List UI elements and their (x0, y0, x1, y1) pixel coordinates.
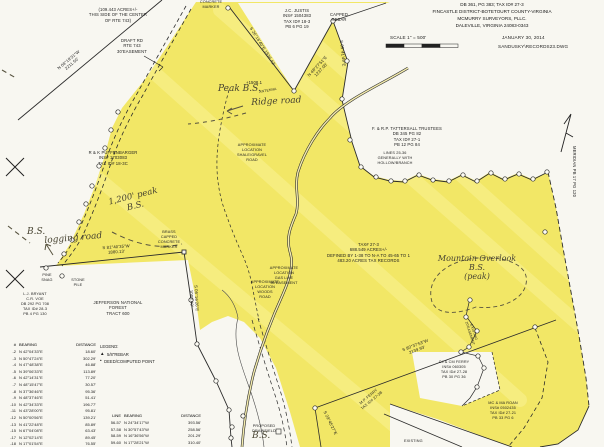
survey-plat-scan: DB 361, PG 383; TAX ID# 27-3 FINCASTLE D… (0, 0, 604, 447)
title-db-ref: DB 361, PG 383; TAX ID# 27-3 (386, 2, 598, 7)
bryant-owner-block: L.J. BRYANT C.R. VOE DB 292 PG 708 TAX I… (12, 292, 58, 317)
scale-bar-segment (440, 44, 458, 48)
shale-road-note: APPROXIMATE LOCATION SHALE/GRAVEL ROAD (228, 143, 276, 163)
cell: 77.20' (69, 376, 96, 381)
cell: 85.89' (69, 423, 96, 428)
cell: N 48°15'47"E (19, 383, 66, 388)
bearing-jnf-east: S 05°16'26"E 1008.40' (187, 276, 200, 321)
title-district: FINCASTLE DISTRICT-BOTETOURT COUNTY-VIRG… (386, 9, 598, 14)
scale-bar-segment (404, 44, 422, 48)
handwritten-mountain-overlook: Mountain Overlook B.S. (peak) (426, 255, 528, 282)
traverse-table-header: #BEARINGDISTANCE (2, 343, 96, 348)
cell: N 16°36'56"W (124, 434, 171, 439)
handwritten-bs-south: B.S. (252, 431, 270, 441)
cell: 393.56' (174, 421, 201, 426)
brass-marker-label: BRASS CAPPED CONCRETE MARKER (150, 230, 188, 250)
cell: # (2, 343, 16, 348)
cell: 76.55' (69, 442, 96, 447)
title-address: DALEVILLE, VIRGINIA 24083-0343 (386, 23, 598, 28)
legend-title: LEGEND: (100, 344, 155, 349)
tattersall-owner-block: F. & R.P. TATTERSALL TRUSTEES DB 345 PG … (352, 126, 462, 148)
cell: 57-58 (103, 428, 121, 433)
cell: 18.60' (69, 350, 96, 355)
puffenbarger-owner-block: R & K PUFFENBARGER INS# 1703083 TAX ID# … (58, 150, 168, 166)
scale-bar (386, 44, 458, 48)
cell: N 67°04'08"E (19, 429, 66, 434)
meridian-label: MERIDIAN PB 17 PG 120 (572, 146, 577, 226)
cell: BEARING (19, 343, 66, 348)
cell: 59-60 (103, 441, 121, 446)
cell: 51.41' (69, 396, 96, 401)
cell: -12 (2, 416, 16, 421)
lines-25-36-note: LINES 25-36 GENERALLY WITH HOLLOW/BRANCH (372, 151, 418, 166)
x-mark (6, 270, 24, 288)
cell: 310.40' (174, 441, 201, 446)
traverse-table: -2N 42°04'33"E18.60'-3N 50°47'24"E302.29… (2, 350, 96, 447)
cell: -5 (2, 370, 16, 375)
existing-road-label: EXISTING (404, 439, 423, 444)
cell: -9 (2, 396, 16, 401)
national-forest-label: JEFFERSON NATIONAL FOREST TRACT 600 (78, 300, 158, 316)
cell: BEARING (124, 414, 171, 419)
line-table: 56-57N 24°34'17"W393.56'57-58N 30°57'43"… (103, 421, 201, 446)
cell: 95.81' (69, 409, 96, 414)
roan-owner-block: MC & MA ROAN INS# 0502435 TAX ID# 27-21 … (476, 401, 530, 421)
cell: N 30°57'43"W (124, 428, 171, 433)
line-table-header: LINEBEARINGDISTANCE (103, 414, 201, 419)
legend: LEGEND: ▲ 5/8"REBAR • DEED/COMPUTED POIN… (100, 344, 155, 364)
cell: 56-57 (103, 421, 121, 426)
cell: LINE (103, 414, 121, 419)
cell: 58-59 (103, 434, 121, 439)
cell: 196.77' (69, 403, 96, 408)
cell: 201.29' (174, 434, 201, 439)
cell: N 17°01'54"E (19, 442, 66, 447)
cell: 30.57' (69, 383, 96, 388)
cell: N 42°14'31"E (19, 376, 66, 381)
cell: -6 (2, 376, 16, 381)
cell: N 42°34'33"E (19, 403, 66, 408)
title-filename: SANDUSKY\RECORDS23.DWG (498, 44, 568, 50)
cell: -7 (2, 383, 16, 388)
cell: 113.89' (69, 370, 96, 375)
title-scale: SCALE 1" = 500' (390, 35, 426, 41)
cell: 95.36' (69, 390, 96, 395)
cell: N 42°04'33"E (19, 350, 66, 355)
justis-owner-block: J.C. JUSTIS INS# 1504383 TAX ID# 18-3 PB… (266, 8, 328, 30)
legend-item-rebar: ▲ 5/8"REBAR (100, 352, 155, 357)
cell: N 43°28'00"E (19, 409, 66, 414)
cell: -8 (2, 390, 16, 395)
cell: -13 (2, 423, 16, 428)
title-surveyor: MCMURRY SURVEYORS, PLLC. (386, 16, 598, 21)
logging-pen-dashes (2, 70, 30, 243)
legend-item-label: 5/8"REBAR (107, 352, 129, 357)
cell: -18 (2, 442, 16, 447)
cell: 302.29' (69, 357, 96, 362)
cell: -3 (2, 357, 16, 362)
cell: DISTANCE (69, 343, 96, 348)
cell: 63.43' (69, 429, 96, 434)
cell: N 24°34'17"W (124, 421, 171, 426)
stone-pile-label: STONE PILE (66, 278, 90, 288)
capped-rebar-label: CAPPED REBAR (322, 12, 356, 23)
cell: -11 (2, 409, 16, 414)
point-dot-icon: • (100, 359, 102, 364)
concrete-marker-label: CONCRETE MARKER (193, 0, 229, 10)
cell: N 39°06'33"E (19, 370, 66, 375)
cell: 89.45' (69, 436, 96, 441)
cell: N 41°22'48"E (19, 423, 66, 428)
scale-bar-segment (386, 44, 404, 48)
cell: DISTANCE (174, 414, 201, 419)
brass-marker-square (182, 250, 186, 254)
cell: N 12°02'14"E (19, 436, 66, 441)
cell: 258.56' (174, 428, 201, 433)
scale-bar-segment (422, 44, 440, 48)
cj-ferry-owner-block: CJ & CM FERRY INS# 060305 TAX ID# 27-28 … (424, 360, 484, 380)
x-mark (6, 158, 24, 176)
cell: -17 (2, 436, 16, 441)
pine-snag-label: PINE SNAG (36, 273, 58, 283)
rebar-triangle-icon: ▲ (100, 352, 105, 357)
cell: 139.21' (69, 416, 96, 421)
cell: -10 (2, 403, 16, 408)
handwritten-bs-west: B.S. (27, 227, 45, 237)
cell: N 50°00'56"E (19, 416, 66, 421)
title-date: JANUARY 30, 2014 (502, 35, 545, 41)
cell: -4 (2, 363, 16, 368)
acreage-note: (109.443 ACRES+/- THIS SIDE OF THE CENTE… (70, 7, 166, 23)
legend-item-point: • DEED/COMPUTED POINT (100, 359, 155, 364)
legend-item-label: DEED/COMPUTED POINT (104, 359, 155, 364)
cell: N 48°37'46"E (19, 396, 66, 401)
cell: -15 (2, 429, 16, 434)
cell: N 50°47'24"E (19, 357, 66, 362)
handwritten-peak-bs: Peak B.S. (218, 84, 261, 94)
draft-rd-note: DRAFT RD RTE 743 30'EASEMENT (103, 38, 161, 54)
cell: N 17°28'21"W (124, 441, 171, 446)
cell: -2 (2, 350, 16, 355)
parcel-area-note: TAX# 27-3 688.549 ACRES+/- DEFINED BY 1-… (296, 242, 441, 264)
cell: 46.88' (69, 363, 96, 368)
cell: N 37°36'46"E (19, 390, 66, 395)
woods-road-note: APPROXIMATE LOCATION WOODS ROAD (244, 280, 286, 300)
cell: N 47°48'38"E (19, 363, 66, 368)
